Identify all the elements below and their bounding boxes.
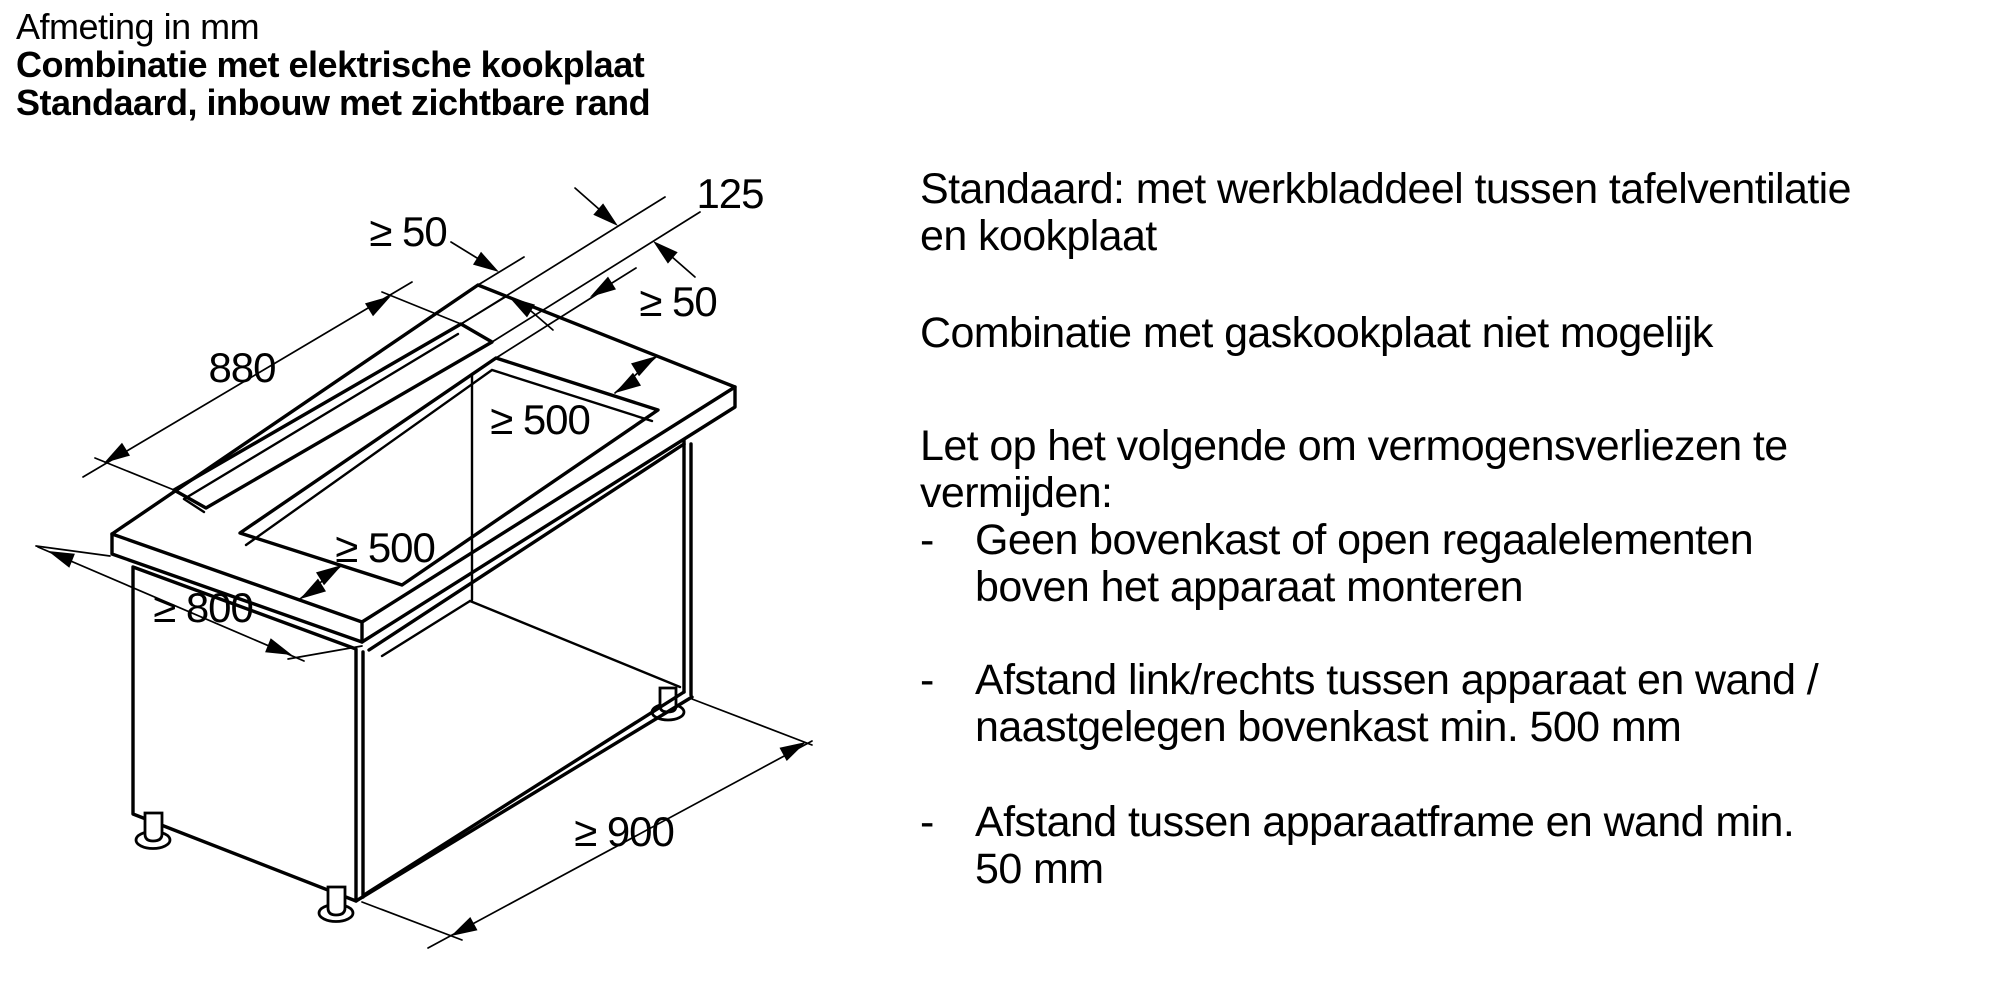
bullet-dash: - [920, 657, 975, 751]
page: Afmeting in mm Combinatie met elektrisch… [0, 0, 2000, 1000]
text-line: Combinatie met gaskookplaat niet mogelij… [920, 310, 1995, 357]
bullet-no-wall-cabinet: - Geen bovenkast of open regaalelementen… [920, 517, 1995, 611]
instructions-column: Standaard: met werkbladdeel tussen tafel… [920, 166, 1995, 893]
text-line: Afstand tussen apparaatframe en wand min… [975, 799, 1794, 846]
paragraph-gas-not-possible: Combinatie met gaskookplaat niet mogelij… [920, 310, 1995, 357]
dimension-arrow [590, 277, 616, 297]
text-line: boven het apparaat monteren [975, 564, 1753, 611]
dim-label-slot-length: 880 [208, 344, 275, 391]
bullet-dash: - [920, 799, 975, 893]
dimension-arrow [473, 252, 499, 272]
dimension-arrow [48, 551, 75, 568]
bullet-frame-distance: - Afstand tussen apparaatframe en wand m… [920, 799, 1995, 893]
text-line: 50 mm [975, 846, 1794, 893]
dimension-arrow [653, 241, 678, 264]
bullet-side-distance: - Afstand link/rechts tussen apparaat en… [920, 657, 1995, 751]
text-line: en kookplaat [920, 213, 1995, 260]
dim-label-cabinet-width: ≥ 900 [574, 808, 674, 855]
dimension-arrow [615, 373, 641, 393]
paragraph-power-loss-note: Let op het volgende om vermogensverlieze… [920, 423, 1995, 517]
dim-label-clearance-front: ≥ 500 [335, 524, 435, 571]
dimension-arrow [265, 638, 292, 655]
cooktop-cutout [240, 358, 658, 585]
text-line: Standaard: met werkbladdeel tussen tafel… [920, 166, 1995, 213]
dim-label-clearance-right: ≥ 500 [490, 396, 590, 443]
dimension-arrow [451, 917, 478, 936]
dimension-arrow [509, 297, 535, 317]
dimension-gap-back: ≥ 50 [369, 208, 553, 330]
dim-label-gap-back: ≥ 50 [369, 208, 446, 255]
dimension-arrow [365, 296, 391, 316]
text-line: Geen bovenkast of open regaalelementen [975, 517, 1753, 564]
dimension-clearance-right: ≥ 500 [490, 356, 657, 443]
text-line: Let op het volgende om vermogensverlieze… [920, 423, 1995, 470]
text-line: Afstand link/rechts tussen apparaat en w… [975, 657, 1818, 704]
cabinet-foot-front-left [319, 887, 353, 922]
text-line: vermijden: [920, 470, 1995, 517]
dim-label-gap-middle: ≥ 50 [639, 278, 716, 325]
dim-label-slot-width: 125 [696, 170, 763, 217]
dimension-arrow [104, 443, 130, 463]
dimension-arrow [631, 356, 657, 376]
dimension-cabinet-width: ≥ 900 [362, 699, 812, 948]
paragraph-standard: Standaard: met werkbladdeel tussen tafel… [920, 166, 1995, 260]
dimension-slot-width: 125 [461, 170, 764, 342]
bullet-dash: - [920, 517, 975, 611]
text-line: naastgelegen bovenkast min. 500 mm [975, 704, 1818, 751]
dimension-slot-length: 880 [83, 282, 461, 490]
dim-label-worktop-depth: ≥ 800 [153, 584, 253, 631]
dimension-arrow [780, 742, 807, 761]
